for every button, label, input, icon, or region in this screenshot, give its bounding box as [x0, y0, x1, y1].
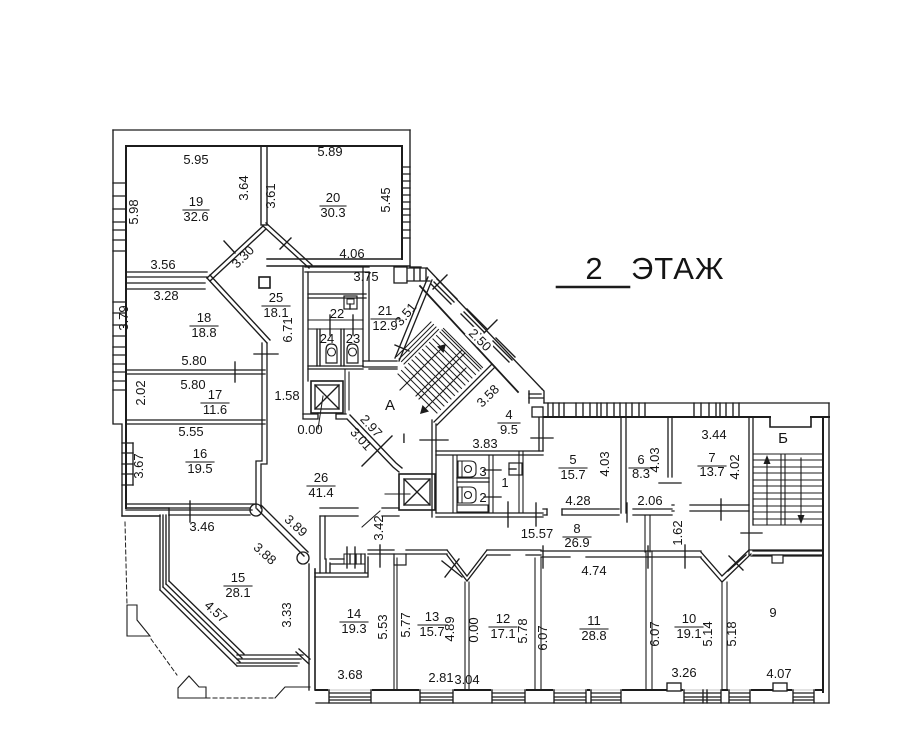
svg-text:41.4: 41.4	[308, 485, 333, 500]
svg-text:5.80: 5.80	[181, 353, 206, 368]
svg-text:4.07: 4.07	[766, 666, 791, 681]
svg-text:1.58: 1.58	[274, 388, 299, 403]
svg-text:3.61: 3.61	[263, 183, 278, 208]
svg-text:4.03: 4.03	[647, 447, 662, 472]
svg-text:3.88: 3.88	[251, 540, 280, 568]
svg-text:4: 4	[505, 407, 512, 422]
svg-text:5.89: 5.89	[317, 144, 342, 159]
svg-text:10: 10	[682, 611, 696, 626]
svg-text:3: 3	[479, 464, 486, 479]
svg-text:3.28: 3.28	[153, 288, 178, 303]
svg-text:5.14: 5.14	[700, 621, 715, 646]
svg-text:15.7: 15.7	[419, 624, 444, 639]
svg-text:5: 5	[569, 452, 576, 467]
svg-text:14: 14	[347, 606, 361, 621]
svg-text:17: 17	[208, 387, 222, 402]
svg-text:2.06: 2.06	[637, 493, 662, 508]
svg-text:17.1: 17.1	[490, 626, 515, 641]
svg-text:3.33: 3.33	[279, 602, 294, 627]
svg-text:4.03: 4.03	[597, 451, 612, 476]
svg-text:5.45: 5.45	[378, 187, 393, 212]
svg-text:13: 13	[425, 609, 439, 624]
svg-text:1: 1	[501, 475, 508, 490]
svg-text:3.46: 3.46	[189, 519, 214, 534]
svg-text:11: 11	[587, 613, 601, 628]
svg-text:6.71: 6.71	[280, 317, 295, 342]
svg-text:5.98: 5.98	[126, 199, 141, 224]
svg-text:7: 7	[708, 450, 715, 465]
svg-text:4.02: 4.02	[727, 454, 742, 479]
svg-text:2: 2	[479, 490, 486, 505]
svg-text:3.89: 3.89	[282, 512, 311, 540]
svg-text:28.8: 28.8	[581, 628, 606, 643]
svg-text:28.1: 28.1	[225, 585, 250, 600]
svg-text:30.3: 30.3	[320, 205, 345, 220]
svg-text:3.42: 3.42	[371, 515, 386, 540]
svg-text:22: 22	[330, 306, 344, 321]
svg-text:11.6: 11.6	[203, 402, 227, 417]
svg-text:5.55: 5.55	[178, 424, 203, 439]
svg-text:3.44: 3.44	[701, 427, 726, 442]
svg-text:12: 12	[496, 611, 510, 626]
svg-text:5.80: 5.80	[180, 377, 205, 392]
svg-text:3.58: 3.58	[474, 382, 503, 411]
svg-text:Б: Б	[778, 430, 788, 447]
svg-text:I: I	[402, 430, 406, 446]
svg-text:6.07: 6.07	[647, 621, 662, 646]
svg-text:5.78: 5.78	[515, 618, 530, 643]
svg-text:24: 24	[320, 331, 334, 346]
svg-text:3.79: 3.79	[116, 305, 131, 330]
svg-text:3.83: 3.83	[472, 436, 497, 451]
svg-text:5.53: 5.53	[375, 614, 390, 639]
svg-text:19.5: 19.5	[187, 461, 212, 476]
svg-text:3.56: 3.56	[150, 257, 175, 272]
svg-text:2: 2	[585, 251, 602, 286]
svg-text:3.04: 3.04	[454, 672, 479, 687]
svg-text:3.30: 3.30	[229, 243, 258, 272]
svg-text:19.1: 19.1	[676, 626, 701, 641]
svg-text:6: 6	[637, 452, 644, 467]
svg-text:18.8: 18.8	[191, 325, 216, 340]
svg-text:15: 15	[231, 570, 245, 585]
svg-text:19: 19	[189, 194, 203, 209]
svg-text:16: 16	[193, 446, 207, 461]
svg-text:18: 18	[197, 310, 211, 325]
svg-text:32.6: 32.6	[183, 209, 208, 224]
svg-text:6.07: 6.07	[535, 625, 550, 650]
svg-text:8: 8	[573, 521, 580, 536]
svg-text:4.57: 4.57	[202, 598, 231, 626]
svg-text:5.77: 5.77	[398, 612, 413, 637]
svg-text:4.89: 4.89	[442, 616, 457, 641]
svg-text:5.95: 5.95	[183, 152, 208, 167]
svg-text:15.57: 15.57	[521, 526, 554, 541]
svg-text:5.18: 5.18	[724, 621, 739, 646]
svg-text:21: 21	[378, 303, 392, 318]
svg-text:3.75: 3.75	[353, 269, 378, 284]
svg-text:20: 20	[326, 190, 340, 205]
svg-text:23: 23	[346, 331, 360, 346]
svg-text:4.28: 4.28	[565, 493, 590, 508]
svg-text:2.02: 2.02	[133, 380, 148, 405]
svg-text:25: 25	[269, 290, 283, 305]
svg-text:3.26: 3.26	[671, 665, 696, 680]
svg-text:26: 26	[314, 470, 328, 485]
svg-text:2.50: 2.50	[466, 326, 495, 355]
svg-text:А: А	[385, 397, 395, 414]
svg-text:0.00: 0.00	[297, 422, 322, 437]
svg-text:9.5: 9.5	[500, 422, 518, 437]
svg-text:2.81: 2.81	[428, 670, 453, 685]
svg-text:ЭТАЖ: ЭТАЖ	[631, 251, 725, 286]
svg-text:9: 9	[769, 605, 776, 620]
svg-text:19.3: 19.3	[341, 621, 366, 636]
svg-text:1.62: 1.62	[670, 520, 685, 545]
svg-text:3.68: 3.68	[337, 667, 362, 682]
svg-text:3.67: 3.67	[131, 453, 146, 478]
svg-text:4.06: 4.06	[339, 246, 364, 261]
svg-text:4.74: 4.74	[581, 563, 606, 578]
svg-text:3.64: 3.64	[236, 175, 251, 200]
svg-text:15.7: 15.7	[560, 467, 585, 482]
svg-text:0.00: 0.00	[466, 617, 481, 642]
